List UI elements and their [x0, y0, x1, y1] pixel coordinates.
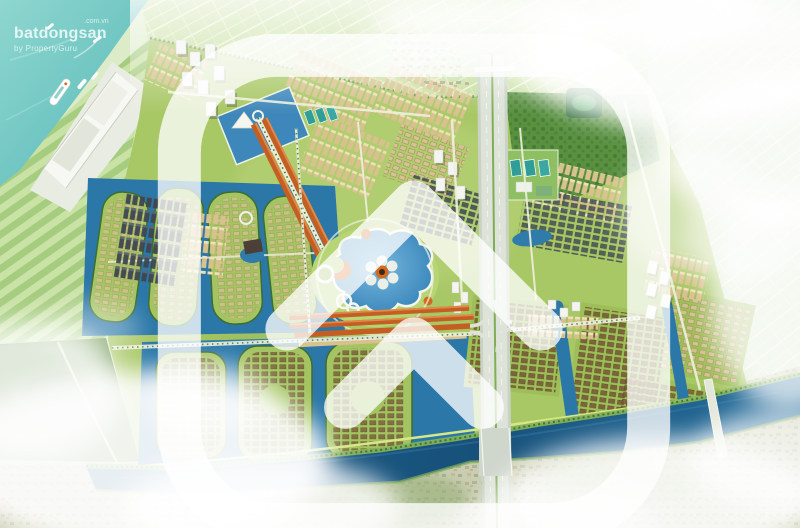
aerial-scene	[0, 0, 800, 528]
roundabout-ring	[317, 266, 333, 282]
school-campus	[506, 150, 558, 200]
masterplan-render: .com.vn batdongsan by PropertyGuru	[0, 0, 800, 528]
highway-bridge	[479, 428, 512, 476]
clubhouse	[240, 239, 264, 263]
